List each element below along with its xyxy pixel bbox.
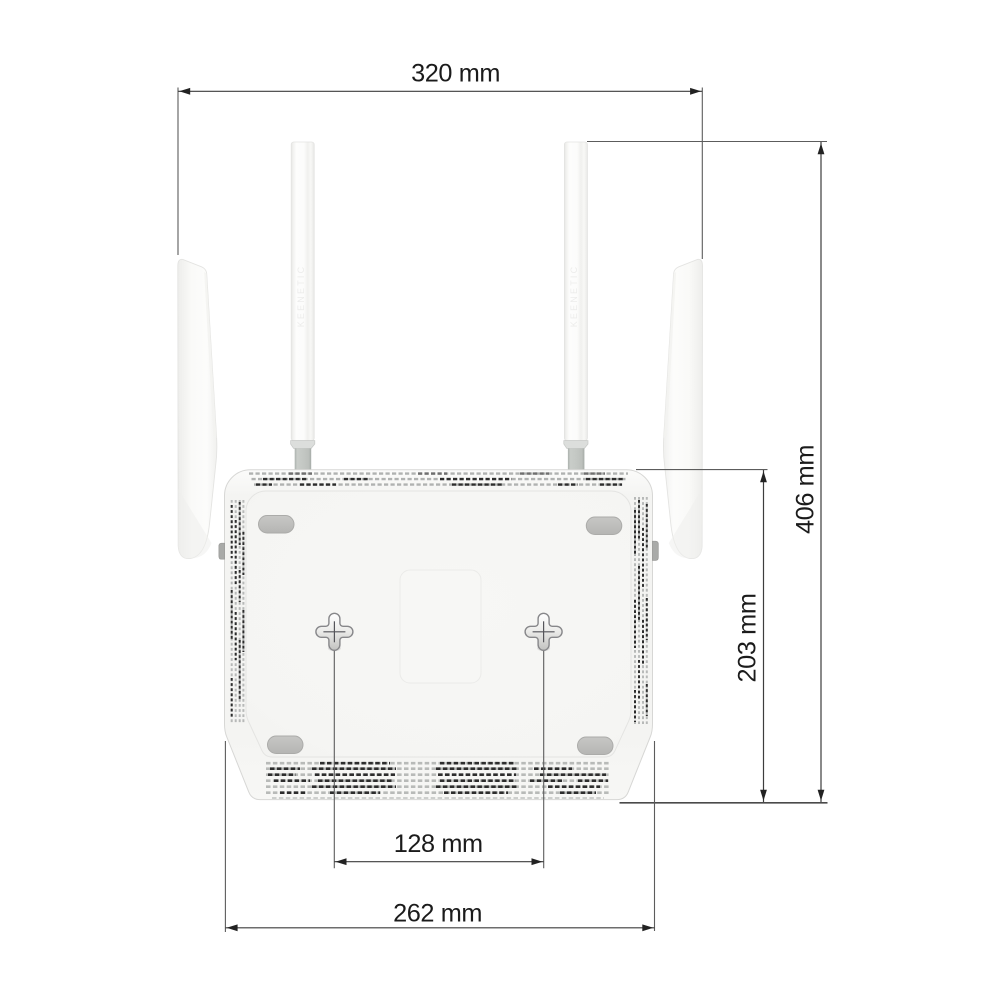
svg-text:406 mm: 406 mm bbox=[792, 445, 820, 534]
svg-text:KEENETIC: KEENETIC bbox=[296, 265, 306, 328]
svg-text:262 mm: 262 mm bbox=[393, 900, 482, 928]
svg-text:128 mm: 128 mm bbox=[394, 830, 483, 858]
svg-text:203 mm: 203 mm bbox=[734, 594, 762, 683]
svg-text:KEENETIC: KEENETIC bbox=[569, 265, 579, 328]
svg-text:320 mm: 320 mm bbox=[411, 60, 500, 88]
